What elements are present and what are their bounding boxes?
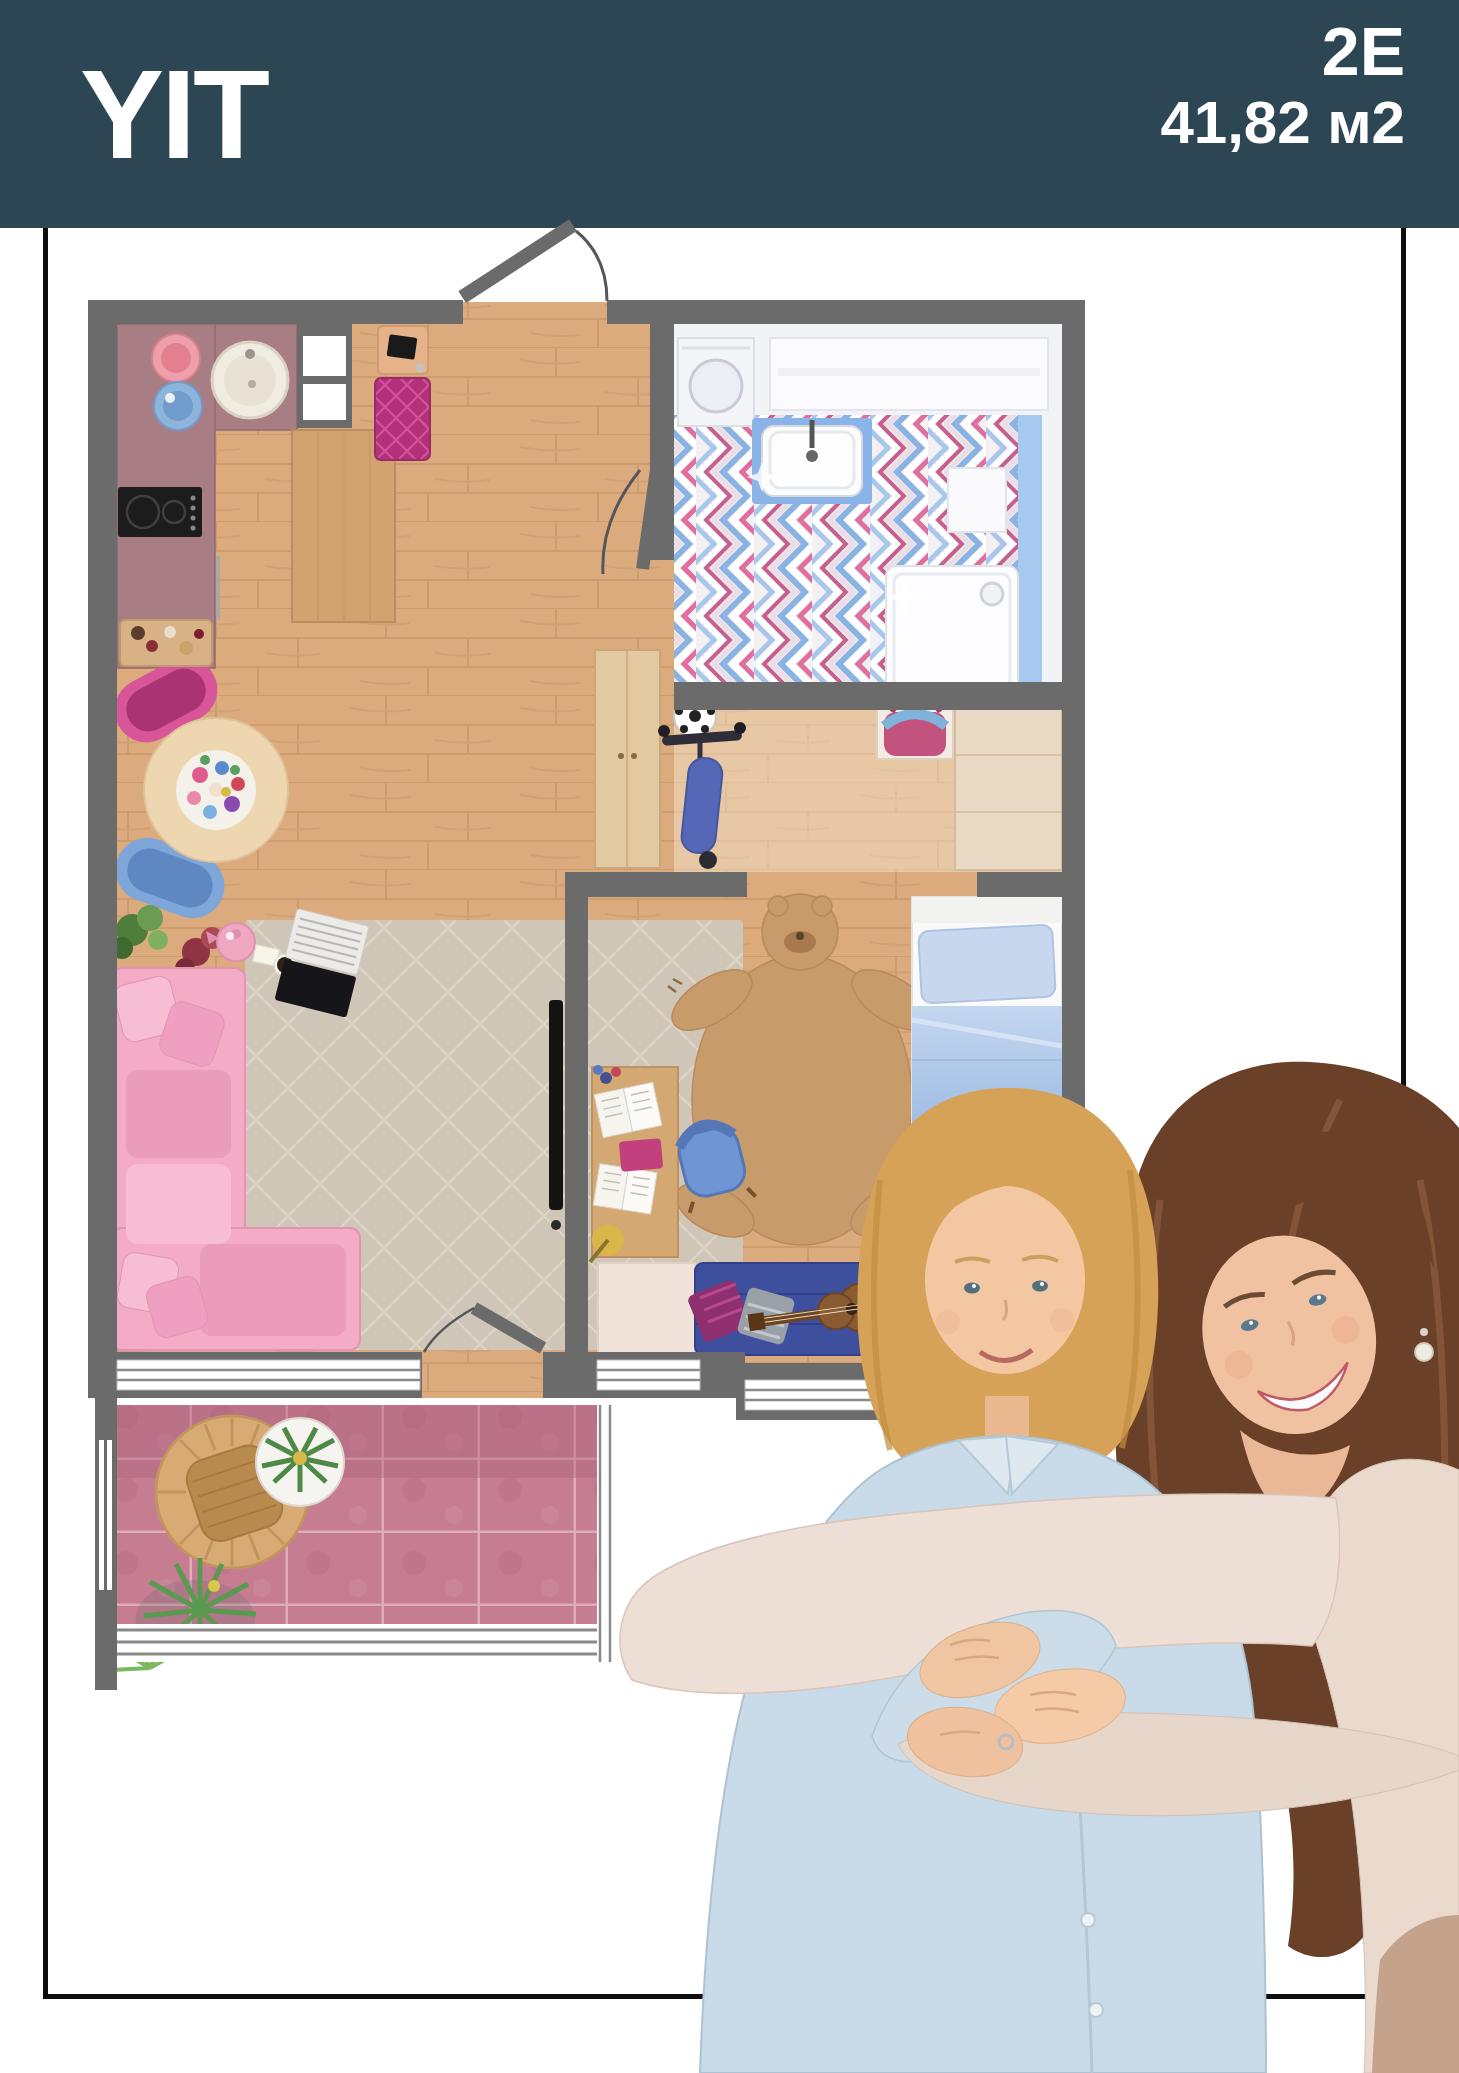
cooktop <box>118 487 202 537</box>
wall-hall-bottom-left <box>565 872 747 897</box>
entry-threshold <box>463 302 607 324</box>
kitchen-plate-pink <box>152 334 200 382</box>
bed-pillow <box>918 925 1056 1004</box>
wall-left <box>88 300 117 1398</box>
desk <box>590 1065 678 1262</box>
wall-top-left <box>88 300 463 324</box>
wall-bath-bottom <box>674 682 1062 710</box>
balcony-door-threshold <box>422 1352 543 1398</box>
bedroom-doorway <box>747 872 977 897</box>
keys <box>415 363 425 373</box>
cutting-board <box>120 620 212 666</box>
hall-closet <box>955 697 1062 870</box>
bedroom-dresser <box>598 1263 695 1355</box>
shower-glass <box>1018 415 1042 682</box>
wall-bedroom-left <box>565 897 588 1363</box>
kitchen-plate-blue <box>154 382 202 430</box>
wall-niche-column <box>297 324 352 428</box>
shirt-button-2 <box>1089 2003 1103 2017</box>
shower-drain <box>981 583 1003 605</box>
seat-pad <box>619 1138 663 1172</box>
living-window-1 <box>117 1360 420 1390</box>
shirt-button <box>1081 1913 1095 1927</box>
floorplan-canvas <box>0 0 1459 2073</box>
washing-machine <box>678 338 754 426</box>
entrance-door-arc <box>576 231 607 301</box>
wall-hall-bottom-right <box>977 872 1062 897</box>
bathroom-sink <box>752 418 872 504</box>
wardrobe <box>595 650 660 868</box>
balcony-table-plant <box>256 1418 344 1506</box>
living-window-2 <box>597 1360 700 1390</box>
child-neck <box>985 1396 1029 1436</box>
kitchen-sink <box>212 342 288 418</box>
round-table <box>144 718 288 862</box>
balcony-wall-left <box>95 1398 117 1690</box>
kitchen-rail <box>216 556 220 620</box>
faucet <box>245 349 255 359</box>
frame-left <box>43 228 48 1999</box>
child-face <box>925 1186 1085 1374</box>
bathroom-shelf <box>948 468 1006 532</box>
quilted-bench <box>375 378 430 460</box>
page: YIT 2E 41,82 м2 <box>0 0 1459 2073</box>
phone-side-table <box>378 326 428 374</box>
tv <box>549 1000 563 1230</box>
phone <box>387 334 418 360</box>
wall-top-right <box>607 300 1085 324</box>
entrance-door <box>458 219 607 303</box>
